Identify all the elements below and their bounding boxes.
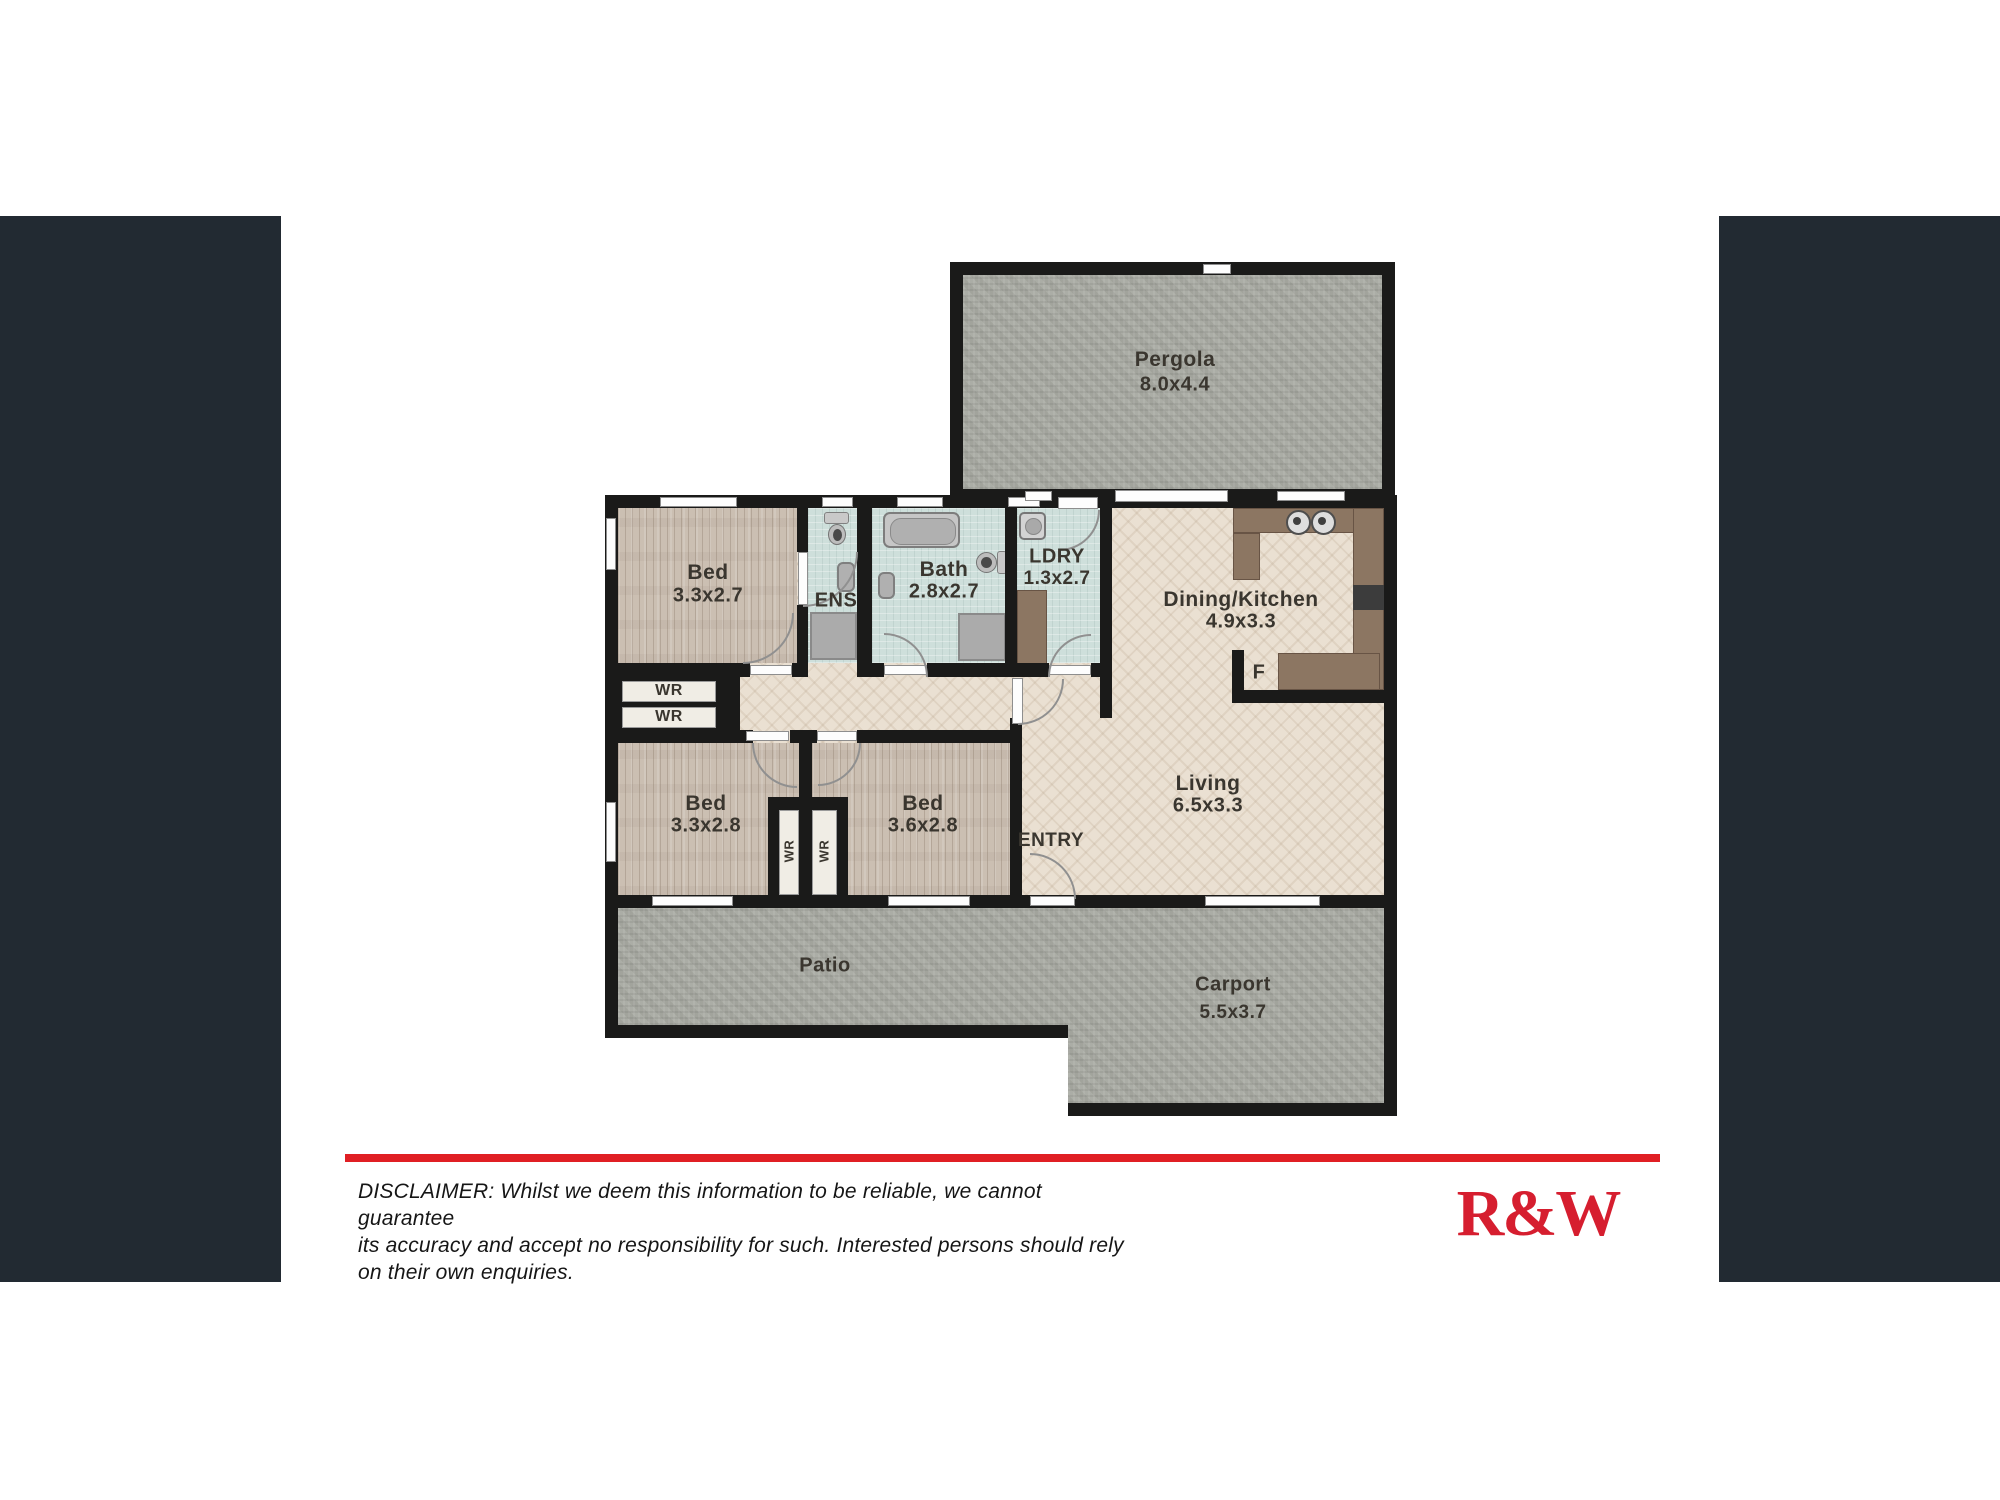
kitchen-counter [1278,653,1380,690]
toilet-icon [976,552,997,573]
shower-icon [958,613,1006,661]
door-leaf [817,731,857,741]
disclaimer-line: its accuracy and accept no responsibilit… [358,1232,1138,1259]
door-leaf [1058,497,1098,509]
wall [768,797,800,810]
wall [768,810,779,895]
wall [837,810,848,895]
kitchen-counter [1233,533,1260,580]
wall [857,663,884,677]
floorplan-page: Pergola 8.0x4.4 Bed 3.3x2.7 ENS Bath 2.8… [0,0,2000,1500]
toilet-icon [824,512,849,524]
divider-line [345,1154,1660,1162]
room-dims-bed1: 3.3x2.7 [673,585,743,608]
room-label-dining-kitchen: Dining/Kitchen [1163,588,1318,612]
disclaimer-text: DISCLAIMER: Whilst we deem this informat… [358,1178,1138,1286]
wall [792,663,808,677]
window [822,497,853,507]
room-label-bed2: Bed [685,792,726,816]
wall [605,730,753,743]
room-label-bed3: Bed [902,792,943,816]
kitchen-sink-icon [1286,510,1311,535]
wall [1005,508,1017,677]
wall [927,663,1017,677]
wardrobe-label: WR [817,840,832,863]
room-dims-dining-kitchen: 4.9x3.3 [1206,611,1276,634]
room-label-ldry: LDRY [1029,546,1085,569]
fridge-label: F [1253,662,1266,685]
wall [812,797,848,810]
room-dims-living: 6.5x3.3 [1173,795,1243,818]
room-dims-carport: 5.5x3.7 [1200,1002,1267,1024]
window [1205,896,1320,906]
sliding-door [1115,490,1228,502]
room-dims-bed3: 3.6x2.8 [888,815,958,838]
bathtub-icon [883,512,960,548]
window [1025,491,1052,501]
agency-logo: R&W [1438,1176,1638,1252]
door-leaf [1049,665,1091,675]
entry-label: ENTRY [1018,830,1084,852]
door-leaf [1030,896,1075,906]
window [660,497,737,507]
wardrobe-label: WR [655,682,683,700]
door-leaf [798,552,808,605]
window [606,518,616,570]
disclaimer-line: DISCLAIMER: Whilst we deem this informat… [358,1178,1138,1232]
room-label-ens: ENS [815,590,858,613]
wall [1100,508,1112,718]
room-label-patio: Patio [799,955,850,978]
wardrobe-label: WR [655,708,683,726]
toilet-icon [828,524,846,545]
wardrobe-label: WR [782,840,797,863]
wall [1017,663,1049,677]
room-label-living: Living [1176,772,1241,796]
sink-icon [878,572,895,599]
wall [1091,663,1112,677]
room-dims-bed2: 3.3x2.8 [671,815,741,838]
door-leaf [1012,678,1023,724]
room-label-bath: Bath [920,558,969,582]
door-leaf [884,665,927,675]
window [1277,491,1345,501]
window [888,896,970,906]
room-label-pergola: Pergola [1135,348,1216,372]
wall [1243,690,1397,703]
window [1203,264,1231,274]
disclaimer-line: on their own enquiries. [358,1259,1138,1286]
right-dark-panel [1719,216,2000,1282]
oven-icon [1353,585,1384,610]
window [897,497,943,507]
wall [797,508,808,552]
left-dark-panel [0,216,281,1282]
door-leaf [746,731,789,741]
wall [857,508,872,677]
room-label-carport: Carport [1195,974,1271,997]
window [606,802,616,862]
kitchen-sink-icon [1311,510,1336,535]
shower-icon [810,612,857,660]
room-label-bed1: Bed [687,561,728,585]
sink-icon [837,562,855,592]
room-dims-ldry: 1.3x2.7 [1024,568,1091,590]
wall [1010,718,1022,895]
wall [857,730,1010,743]
door-leaf [750,665,792,675]
washing-machine-icon [1019,512,1046,540]
room-dims-pergola: 8.0x4.4 [1140,374,1210,397]
window [652,896,733,906]
wall [799,730,812,895]
room-dims-bath: 2.8x2.7 [909,581,979,604]
